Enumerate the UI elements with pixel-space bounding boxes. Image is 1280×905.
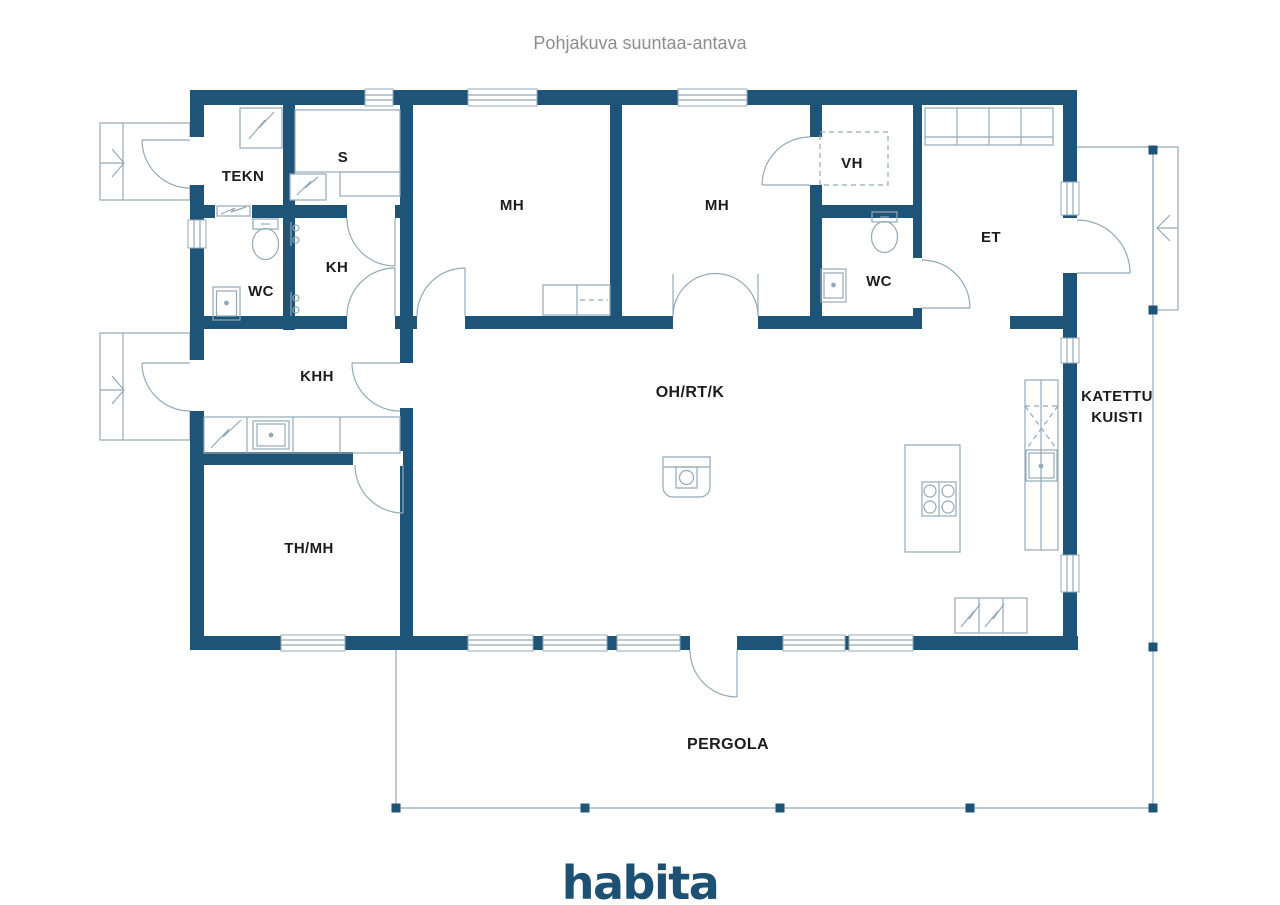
entrance-steps-right [1153,147,1178,310]
room-label-wc-right: WC [866,273,892,290]
porch-lower-left [100,333,190,440]
fireplace [663,457,710,497]
sauna-stove [290,174,326,200]
room-label-mh-left: MH [500,197,524,214]
room-label-kuisti-line1: KATETTU [1081,388,1153,405]
sink-left [213,287,240,320]
livingroom-cabinets [955,598,1027,633]
pergola-posts [392,146,1158,813]
room-label-khh: KHH [300,368,334,385]
room-label-tekn: TEKN [222,168,264,185]
sink-right [821,269,846,302]
room-label-sauna: S [338,149,348,166]
kitchen-island [905,445,960,552]
porch-upper-left [100,123,190,200]
page-title: Pohjakuva suuntaa-antava [533,33,747,53]
room-label-mh-right: MH [705,197,729,214]
mh1-wardrobe [543,285,610,315]
kitchen-counter [1025,380,1058,550]
floorplan-page: Pohjakuva suuntaa-antava [0,0,1280,905]
room-label-pergola: PERGOLA [687,736,769,753]
habita-logo: habita [562,856,719,905]
room-label-wc-left: WC [248,283,274,300]
room-label-et: ET [981,229,1001,246]
toilet-left [253,219,279,260]
toilet-right [872,212,898,253]
water-heater [240,108,282,148]
room-label-th-mh: TH/MH [284,540,334,557]
floorplan-canvas: Pohjakuva suuntaa-antava [0,0,1280,905]
room-label-vh: VH [841,155,863,172]
room-label-kh: KH [326,259,348,276]
utility-counter [204,417,400,453]
room-label-living: OH/RT/K [656,384,725,401]
et-wardrobe [925,108,1053,145]
room-label-kuisti-line2: KUISTI [1091,409,1143,426]
